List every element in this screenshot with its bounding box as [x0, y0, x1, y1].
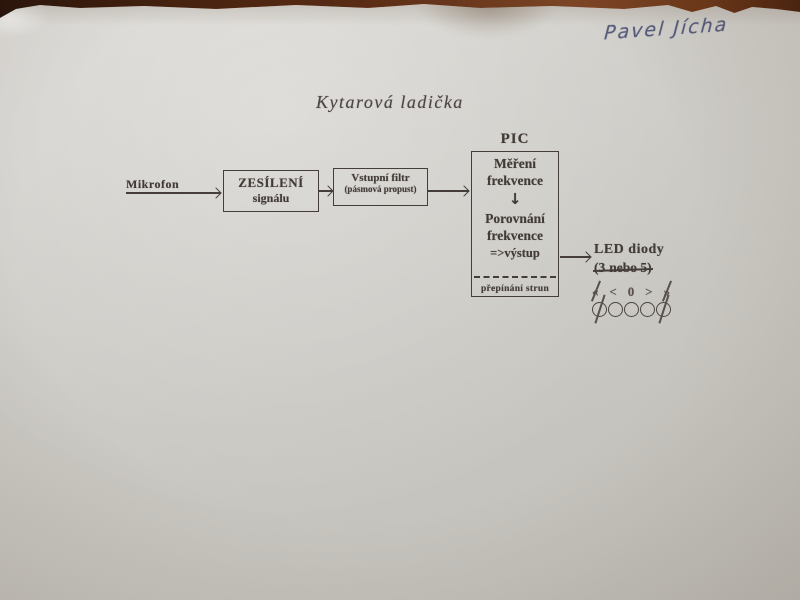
pic-step2-line1: Porovnání: [472, 210, 558, 227]
pic-step1-line2: frekvence: [472, 172, 558, 189]
led-circle-crossed: [592, 302, 607, 317]
diagram-title: Kytarová ladička: [316, 92, 464, 113]
led-circle: [624, 302, 639, 317]
pic-step2-line2: frekvence: [472, 227, 558, 244]
pic-label: PIC: [471, 131, 559, 148]
amplifier-box: ZESÍLENÍ signálu: [223, 170, 319, 212]
arrow-right-icon: [580, 251, 591, 262]
led-circles-row: [592, 302, 671, 317]
arrow-right-icon: [458, 185, 469, 196]
down-arrow-icon: ↓: [472, 189, 558, 210]
filter-box: Vstupní filtr (pásmová propust): [333, 168, 428, 206]
pic-dashed-divider: [474, 276, 556, 278]
amplifier-box-line2: signálu: [224, 191, 318, 206]
amplifier-box-line1: ZESÍLENÍ: [224, 175, 318, 191]
tuning-symbol-flat: <: [609, 284, 616, 300]
arrow-right-icon: [210, 187, 221, 198]
pic-step1-line1: Měření: [472, 155, 558, 172]
filter-box-line1: Vstupní filtr: [334, 172, 427, 184]
handwritten-name: Pavel Jícha: [603, 10, 784, 45]
tuning-symbol-in-tune: 0: [628, 284, 635, 300]
led-count-prefix: (3: [594, 260, 605, 275]
led-circle: [640, 302, 655, 317]
led-circle: [608, 302, 623, 317]
pic-box: Měření frekvence ↓ Porovnání frekvence =…: [471, 151, 559, 297]
diagram-layer: Pavel Jícha Kytarová ladička Mikrofon ZE…: [0, 0, 800, 600]
led-circle-crossed: [656, 302, 671, 317]
pic-footer-label: přepínání strun: [472, 284, 558, 294]
filter-box-line2: (pásmová propust): [334, 184, 427, 194]
photo-background: Pavel Jícha Kytarová ladička Mikrofon ZE…: [0, 0, 800, 600]
tuning-symbol-far-flat-crossed: «: [592, 284, 599, 300]
pic-output-line: =>výstup: [472, 244, 558, 262]
led-label: LED diody: [594, 242, 664, 258]
led-count-label: (3nebo 5): [594, 260, 652, 276]
tuning-symbol-sharp: >: [645, 284, 652, 300]
paper-sheet: Pavel Jícha Kytarová ladička Mikrofon ZE…: [0, 0, 800, 600]
led-count-struck-wrap: nebo 5): [605, 260, 651, 276]
arrow-right-icon: [322, 185, 333, 196]
microphone-label: Mikrofon: [126, 177, 179, 192]
arrow-line-mic: [126, 192, 220, 194]
